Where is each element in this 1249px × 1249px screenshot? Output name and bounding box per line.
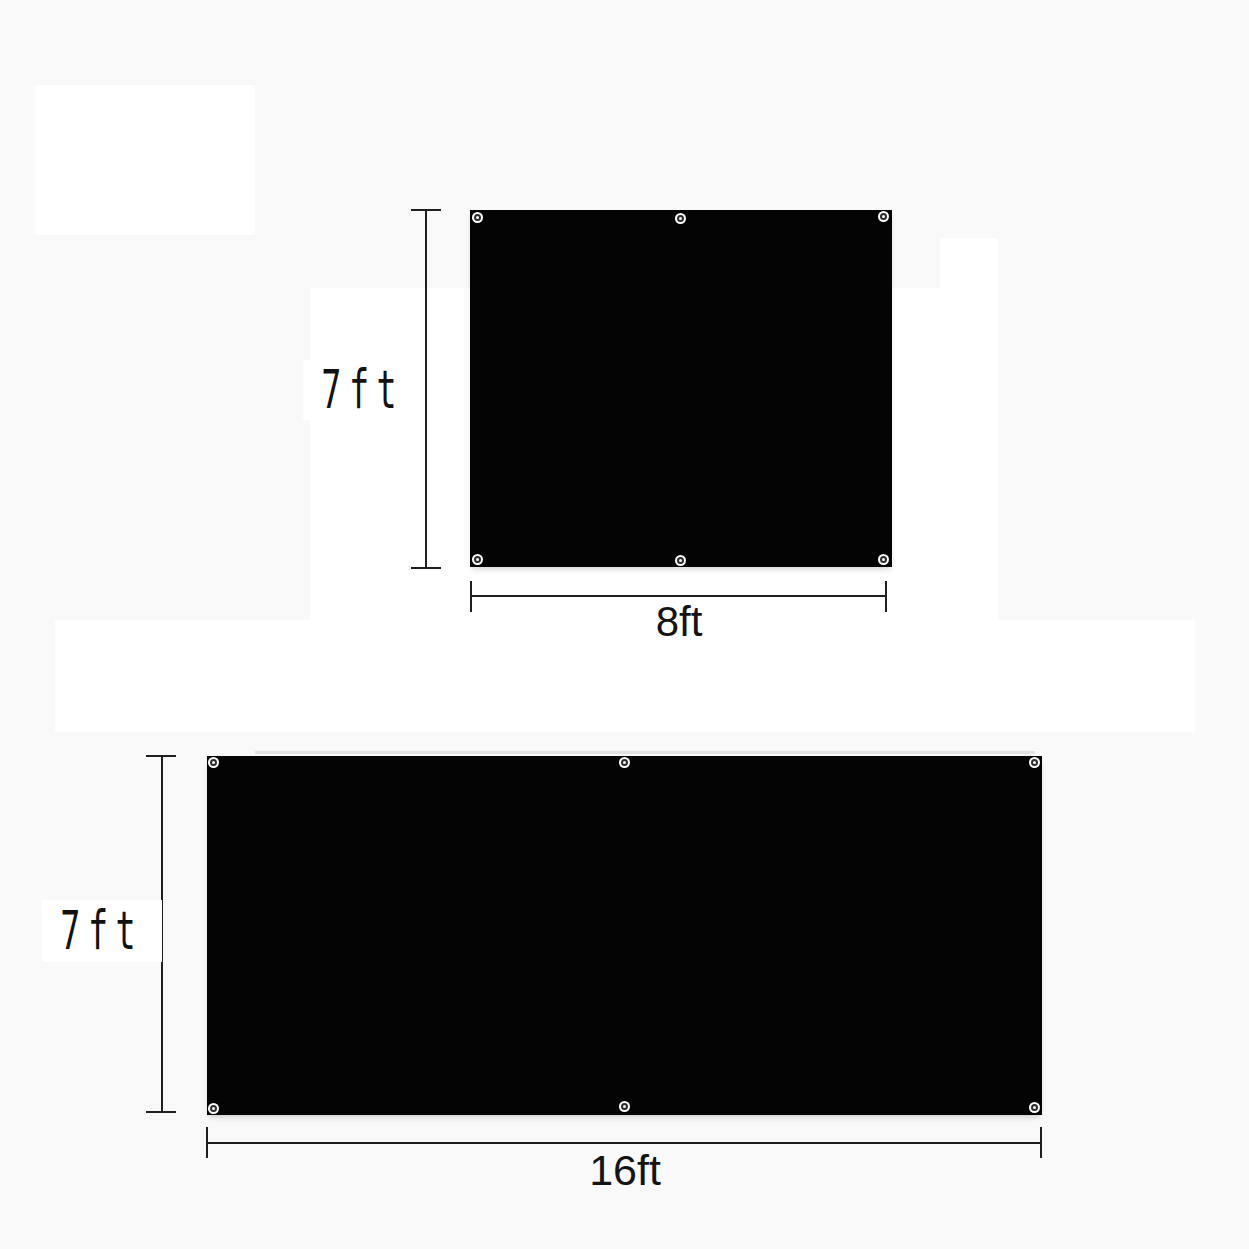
width-label: 16ft [574, 1149, 676, 1192]
grommet-icon [619, 757, 630, 768]
figure-16ft-panel: 7ft 16ft [0, 0, 1249, 1249]
height-dimension-bottom-cap [146, 1111, 176, 1113]
product-dimension-image: 7ft 8ft 7ft [0, 0, 1249, 1249]
grommet-icon [1029, 757, 1040, 768]
height-label: 7ft [42, 900, 162, 962]
grommet-icon [619, 1101, 630, 1112]
grommet-icon [208, 757, 219, 768]
height-label-text: 7ft [61, 904, 144, 958]
width-dimension-right-tick [1040, 1127, 1042, 1158]
black-fabric-panel [207, 756, 1042, 1115]
width-dimension-line [206, 1142, 1042, 1144]
grommet-icon [1029, 1102, 1040, 1113]
grommet-icon [208, 1103, 219, 1114]
